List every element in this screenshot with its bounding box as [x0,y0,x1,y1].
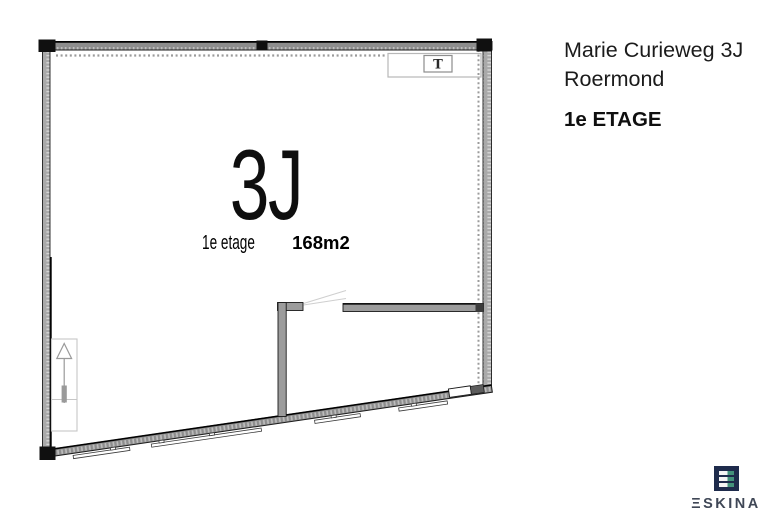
interior-wall-vertical [278,303,286,417]
eskina-logo-wordmark: ΞSKINA [691,496,760,512]
right-wall [483,40,492,391]
unit-area-text: 168m2 [292,232,350,254]
t-symbol: T [433,58,443,73]
logo-bar [719,477,734,481]
stair-arrow-icon [52,339,78,431]
unit-label: 3J [208,135,323,234]
address-line-1: Marie Curieweg 3J [564,36,743,65]
corner-connector-dark [470,385,484,395]
technical-symbol-box: T [388,54,481,78]
eskina-logo-icon [714,466,739,491]
bottom-wall [44,383,493,463]
floorplan-page: T 3J 1e etage 168m2 Marie Curieweg 3J Ro… [0,0,780,520]
unit-floor-text: 1e etage [202,232,255,255]
floor-plan-drawing: T [0,0,540,520]
header: Marie Curieweg 3J Roermond 1e ETAGE [564,36,743,133]
door-opening-lines [304,291,347,306]
address-line-2: Roermond [564,65,743,94]
floor-label: 1e ETAGE [564,107,743,133]
logo-bar [719,483,734,487]
facade-panels [73,399,448,459]
logo-bar [719,471,734,475]
eskina-logo: ΞSKINA [687,466,765,512]
left-wall [43,42,51,460]
unit-caption: 1e etage 168m2 [196,232,356,255]
